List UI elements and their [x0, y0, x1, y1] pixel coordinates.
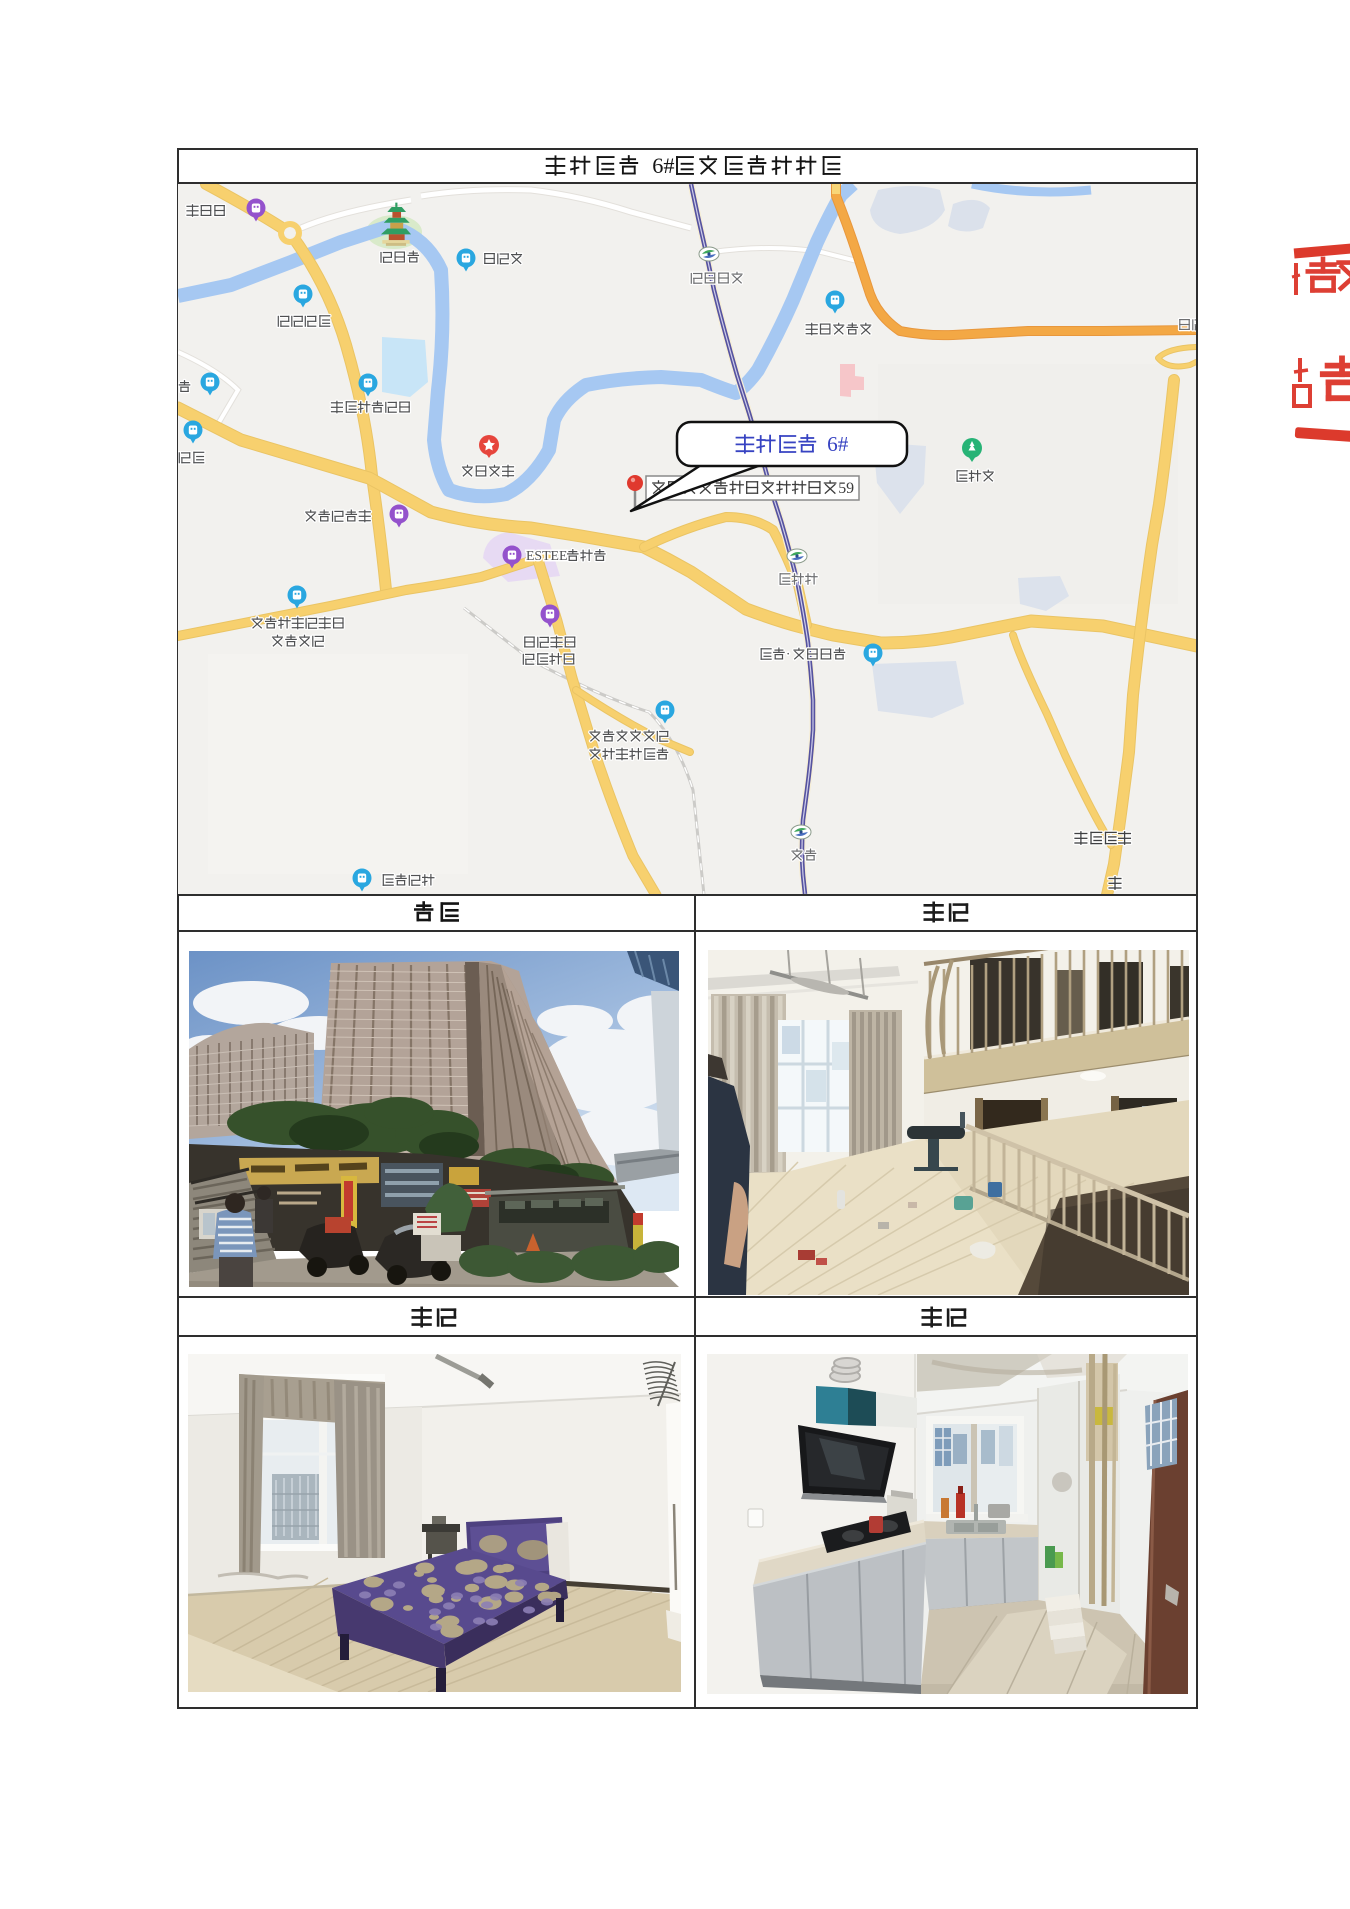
- svg-text:6#: 6#: [652, 153, 674, 178]
- svg-text:59: 59: [838, 480, 854, 497]
- svg-text:·: ·: [786, 647, 791, 662]
- svg-text:6#: 6#: [827, 432, 849, 456]
- svg-text:ESTEE: ESTEE: [526, 548, 567, 563]
